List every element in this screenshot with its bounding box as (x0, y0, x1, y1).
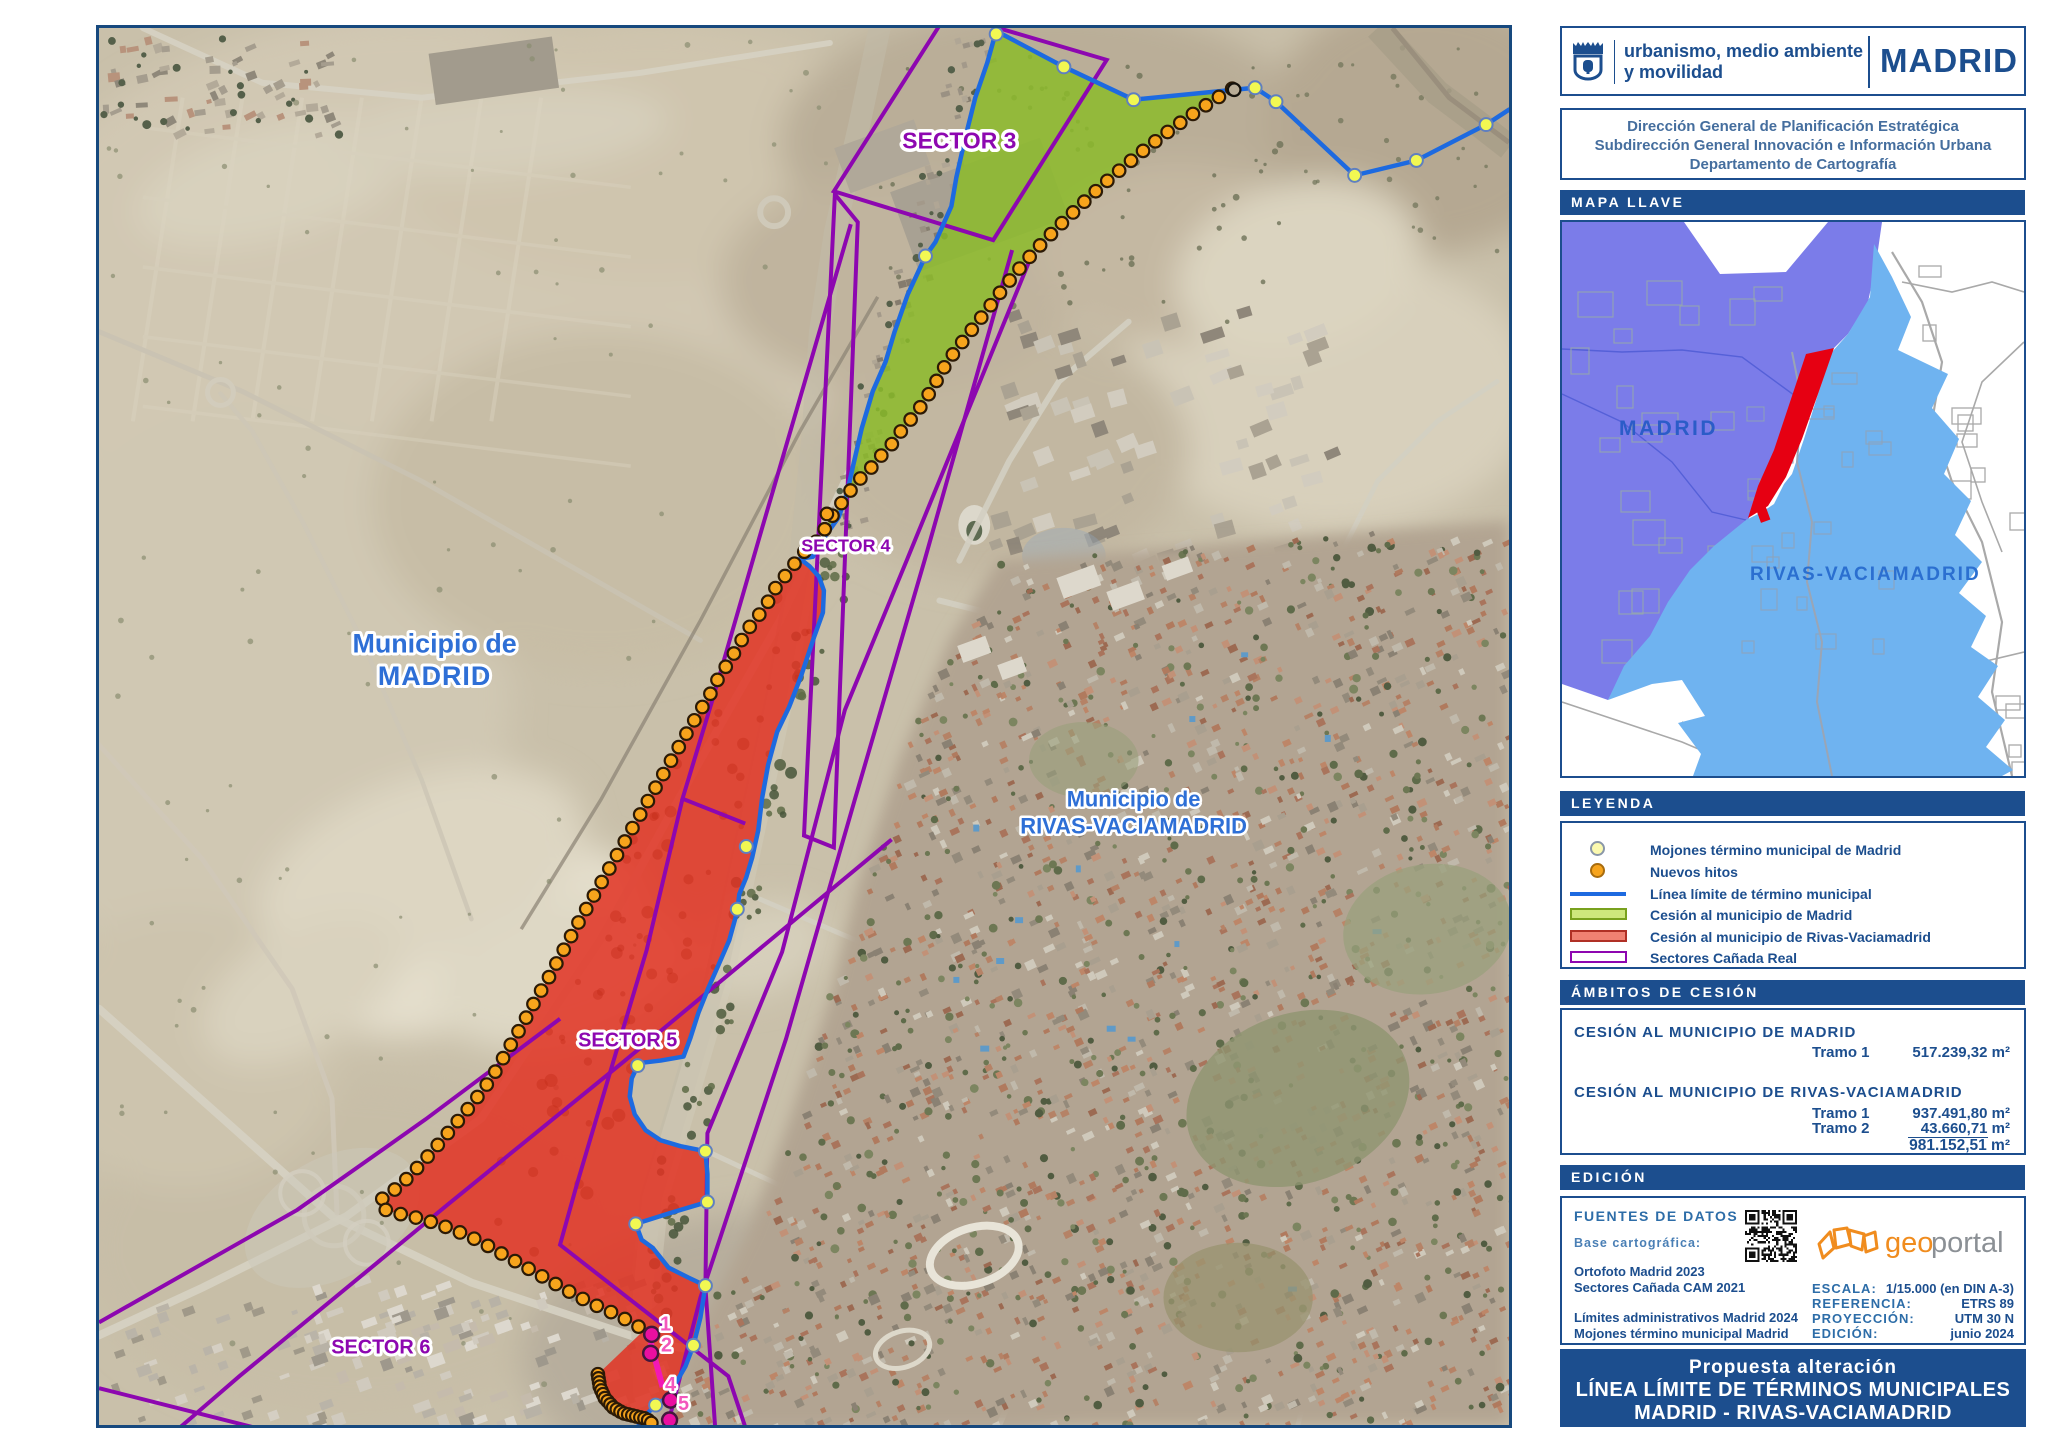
svg-text:Municipio de: Municipio de (1067, 787, 1201, 812)
svg-text:SECTOR 4: SECTOR 4 (801, 536, 890, 556)
svg-text:2: 2 (661, 1334, 672, 1356)
svg-text:SECTOR 3: SECTOR 3 (902, 127, 1016, 153)
svg-text:RIVAS-VACIAMADRID: RIVAS-VACIAMADRID (1020, 814, 1247, 839)
svg-text:Municipio de: Municipio de (352, 628, 516, 658)
svg-text:RIVAS-VACIAMADRID: RIVAS-VACIAMADRID (1750, 564, 1981, 585)
svg-text:SECTOR 5: SECTOR 5 (578, 1030, 677, 1052)
svg-text:portal: portal (1931, 1227, 2004, 1259)
svg-text:SECTOR 6: SECTOR 6 (331, 1336, 430, 1358)
svg-text:4: 4 (665, 1374, 676, 1396)
svg-text:MADRID: MADRID (1619, 417, 1718, 440)
svg-text:5: 5 (678, 1393, 689, 1415)
svg-text:geo: geo (1885, 1227, 1933, 1259)
svg-text:MADRID: MADRID (378, 661, 491, 691)
svg-text:1: 1 (660, 1313, 671, 1335)
